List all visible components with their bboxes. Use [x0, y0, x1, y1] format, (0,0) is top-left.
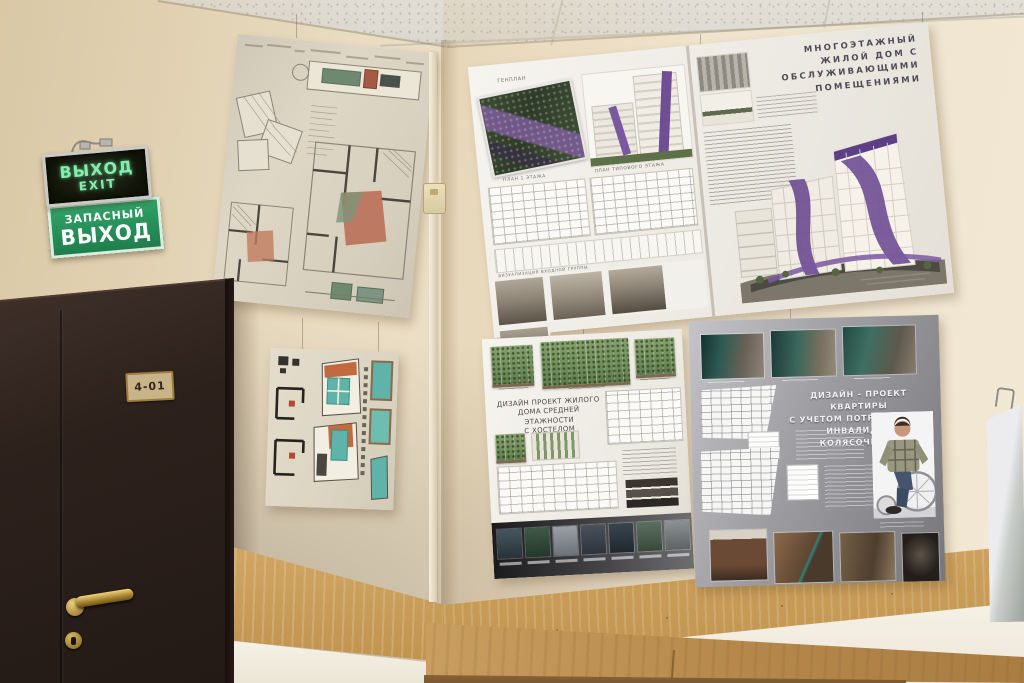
- render-thumb: [497, 529, 522, 559]
- render-caption: [854, 377, 890, 381]
- green-thumb: [495, 433, 526, 464]
- floor-plan-typical: [589, 168, 698, 236]
- poster-accessible-apartment: ДИЗАЙН - ПРОЕКТ КВАРТИРЫ С УЧЕТОМ ПОТРЕБ…: [689, 315, 946, 587]
- interior-render: [550, 271, 608, 320]
- facade-caption: [569, 386, 605, 391]
- hanging-wire: [302, 318, 303, 352]
- interior-render-warm: [710, 529, 767, 580]
- green-facade-elevation: [490, 345, 534, 388]
- genplan-label: ГЕНПЛАН: [497, 76, 526, 85]
- picture-frame-edge: [986, 404, 1024, 623]
- vertical-conduit: [429, 52, 437, 602]
- interior-render-warm: [840, 532, 895, 581]
- floor-plan-first: [488, 178, 591, 245]
- room-number: 4-01: [134, 379, 166, 394]
- render-thumb: [525, 527, 550, 557]
- facade-caption: [640, 378, 670, 383]
- green-facade-elevation: [634, 337, 676, 378]
- facade-caption: [498, 387, 528, 392]
- body-text: [795, 429, 864, 461]
- emergency-sign-line2: ВЫХОД: [60, 220, 153, 249]
- building-elevation-render: [581, 64, 694, 168]
- wall-corner: [441, 40, 459, 605]
- room-photo: ВЫХОД EXIT ЗАПАСНЫЙ ВЫХОД 4-01: [0, 0, 1024, 683]
- cottage-drawings: [265, 348, 398, 510]
- materials-strip: [625, 477, 678, 508]
- render-thumb: [665, 520, 690, 550]
- bathroom-render: [843, 325, 916, 375]
- spec-text: [622, 447, 677, 478]
- render-caption: [708, 381, 744, 385]
- elevation-thumb: [700, 90, 755, 127]
- render-thumb: [637, 521, 662, 551]
- caption-text: [756, 91, 818, 119]
- room-number-plate: 4-01: [125, 371, 174, 402]
- interior-render: [495, 277, 549, 326]
- render-thumb: [553, 526, 578, 556]
- door-frame: [225, 276, 234, 683]
- door-panel-seam: [60, 310, 62, 683]
- door-keyhole: [65, 632, 82, 649]
- hanging-wire: [378, 322, 379, 352]
- render-caption: [782, 379, 818, 383]
- bathroom-render: [771, 329, 836, 377]
- wheelchair-user-photo: [871, 411, 936, 519]
- frame-hanger: [995, 387, 1016, 409]
- poster-hostel-project: ДИЗАЙН ПРОЕКТ ЖИЛОГО ДОМА СРЕДНЕЙ ЭТАЖНО…: [482, 329, 694, 579]
- hostel-big-plan: [497, 461, 619, 515]
- architectural-drawings: [212, 34, 435, 318]
- entrance-door: 4-01: [0, 276, 234, 683]
- green-facade-elevation: [540, 338, 630, 390]
- render-thumb: [609, 523, 634, 553]
- body-text: [824, 465, 873, 510]
- legend-table: [786, 464, 819, 501]
- main-building-render: [725, 112, 947, 303]
- exit-sign: ВЫХОД EXIT: [42, 145, 152, 207]
- photo-caption: [880, 521, 924, 528]
- corridor-render: [902, 533, 939, 582]
- poster-cottage-drawings: [265, 348, 398, 510]
- render-thumb: [581, 524, 606, 554]
- interior-render: [609, 265, 669, 314]
- poster-hand-drawn-project: [212, 34, 435, 318]
- hostel-floor-plan: [605, 387, 684, 445]
- render-strip-dark: [491, 513, 694, 579]
- bathroom-render: [701, 333, 764, 379]
- elevation-thumb: [531, 430, 580, 460]
- exit-sign-text-en: EXIT: [78, 177, 117, 193]
- door-handle: [75, 588, 134, 608]
- alarm-sensor: [423, 183, 446, 214]
- interior-render-warm: [774, 532, 833, 584]
- hanging-wire: [296, 14, 297, 38]
- city-block-thumb: [696, 52, 751, 93]
- apartment-plan-2: [700, 447, 782, 517]
- board-residential-project: ГЕНПЛАН ПЛАН 1 ЭТАЖА ПЛАН ТИПОВОГО ЭТАЖА…: [468, 22, 954, 338]
- site-plan-render: [477, 78, 588, 178]
